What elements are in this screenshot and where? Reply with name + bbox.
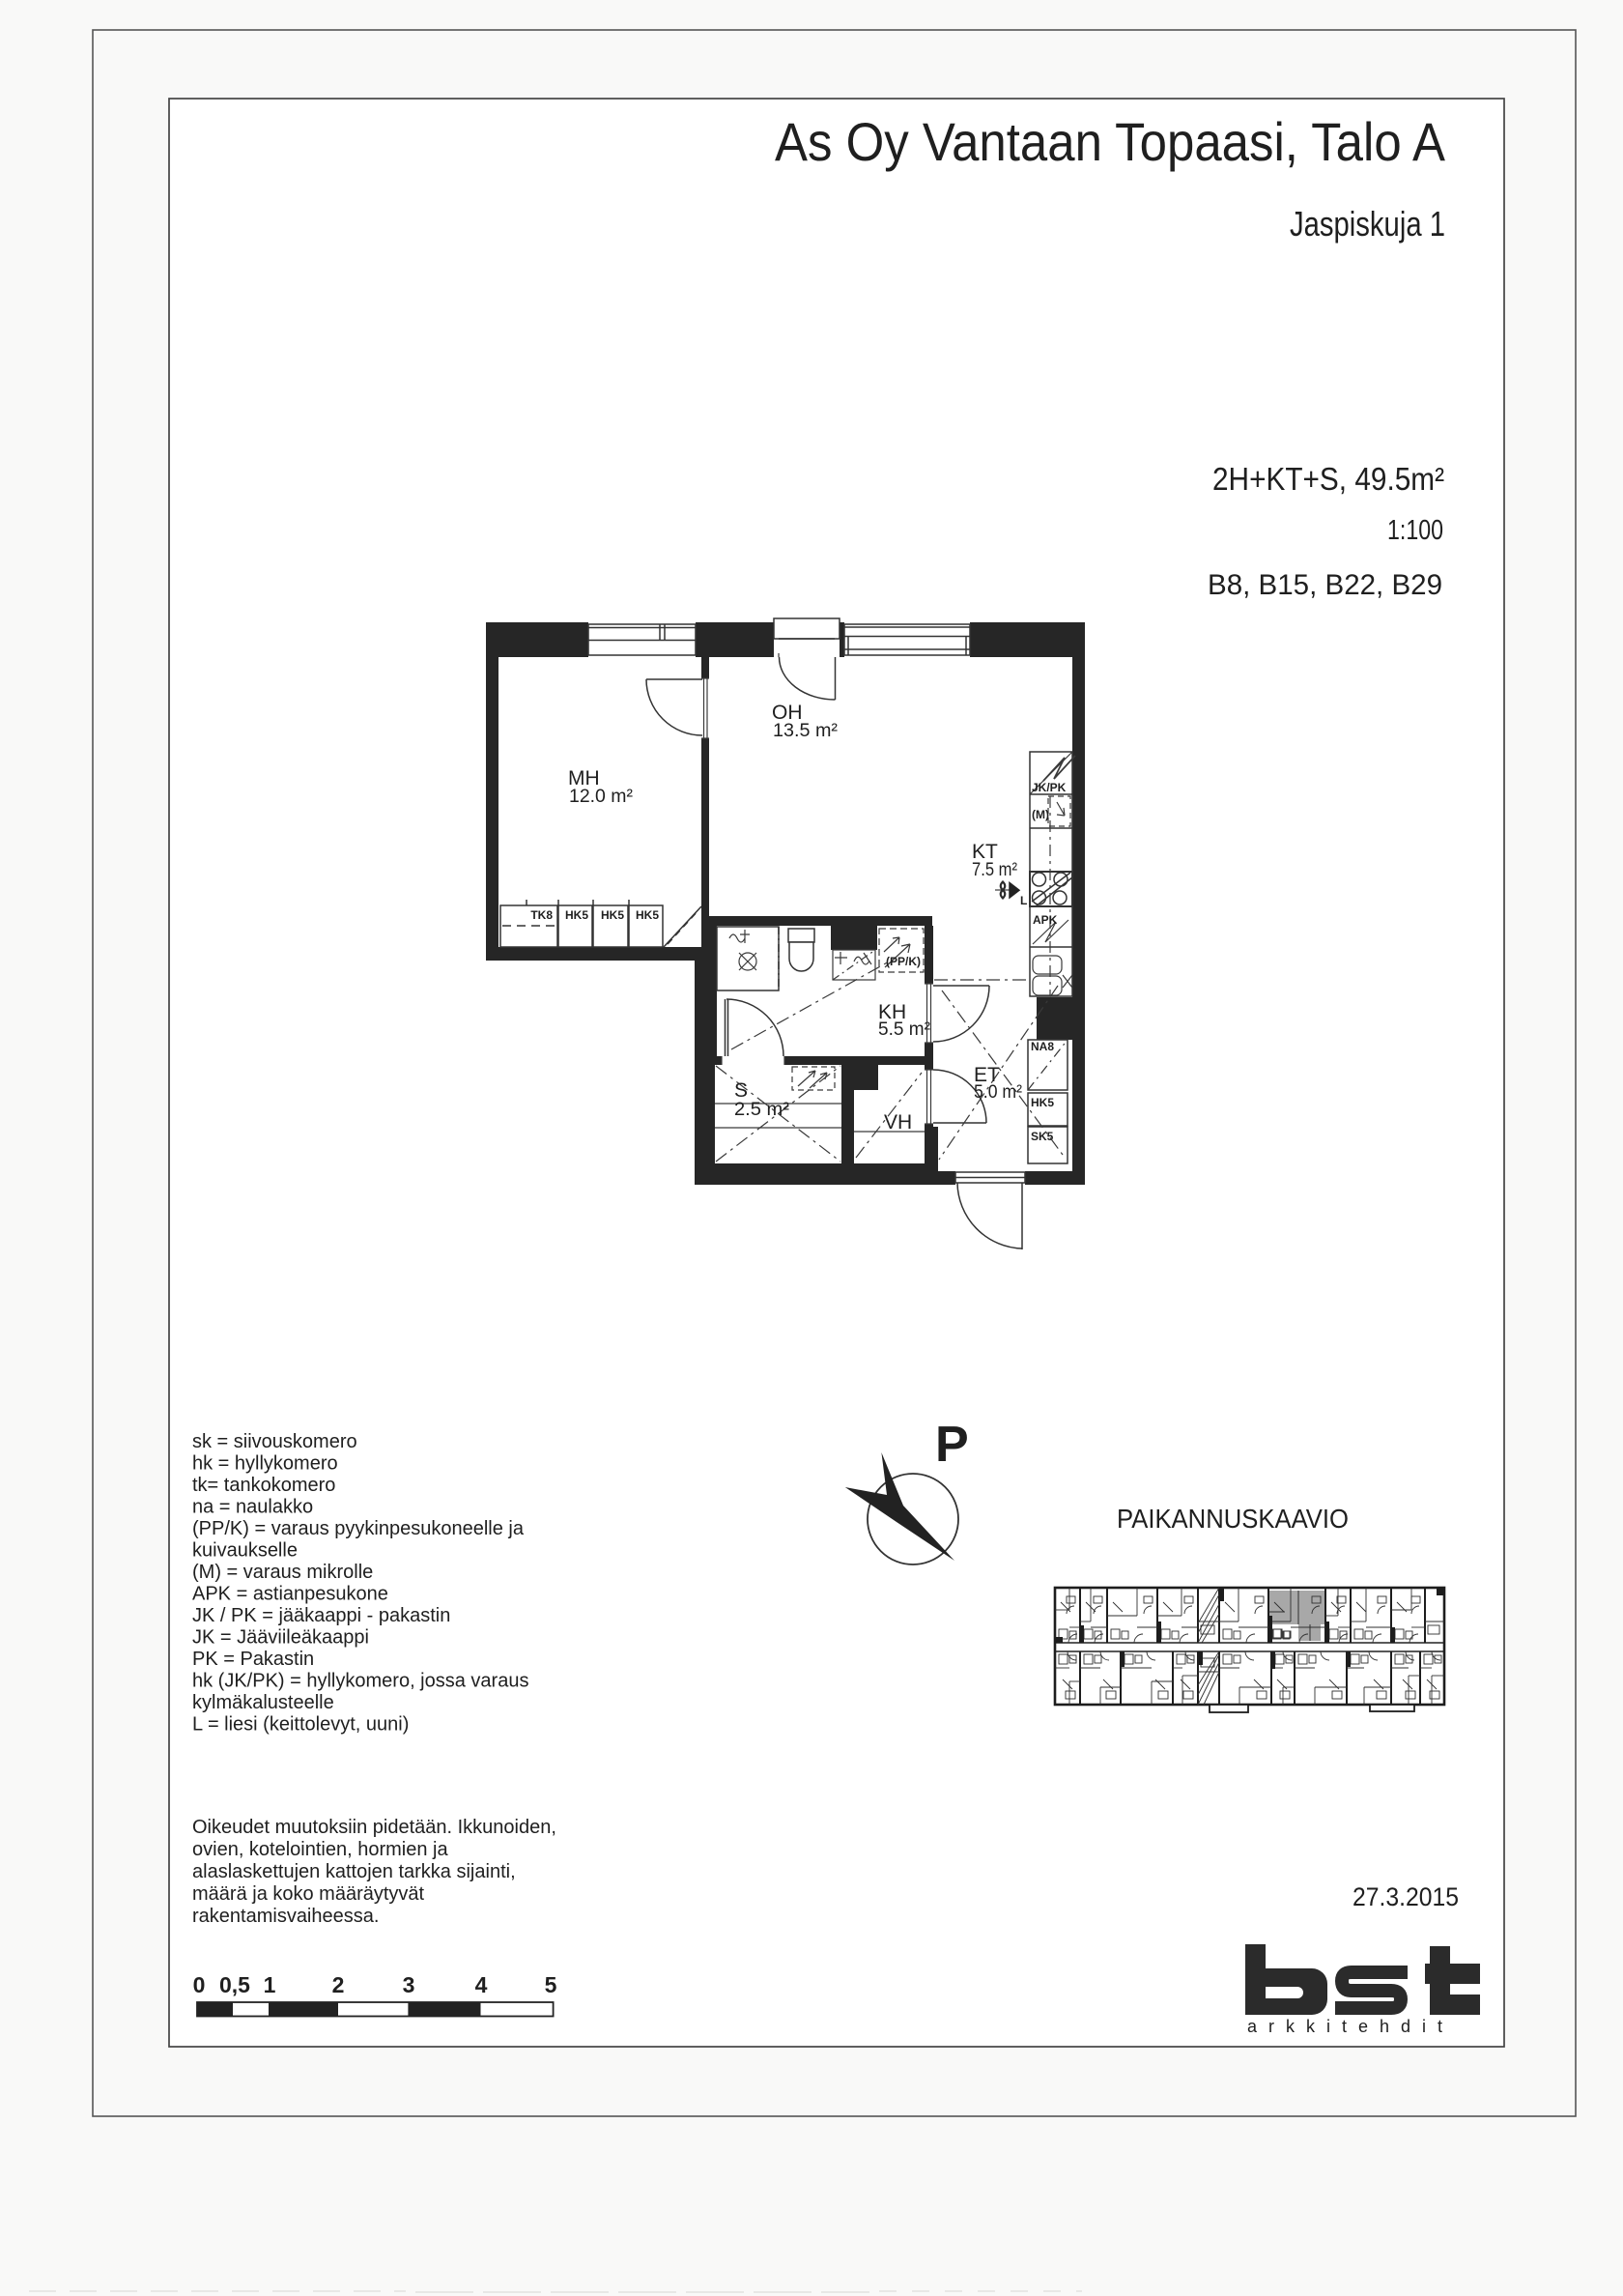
svg-text:JK / PK = jääkaappi - pakastin: JK / PK = jääkaappi - pakastin [192,1605,450,1626]
svg-text:13.5 m²: 13.5 m² [773,721,838,741]
svg-text:S: S [734,1079,748,1102]
svg-text:määrä ja koko määräytyvät: määrä ja koko määräytyvät [192,1883,425,1905]
svg-text:2: 2 [332,1972,345,1997]
svg-text:hk (JK/PK) = hyllykomero, joss: hk (JK/PK) = hyllykomero, jossa varaus [192,1671,528,1692]
svg-text:rakentamisvaiheessa.: rakentamisvaiheessa. [192,1906,379,1927]
svg-text:Jaspiskuja 1: Jaspiskuja 1 [1290,204,1445,244]
svg-text:APK: APK [1033,913,1058,927]
svg-text:7.5 m²: 7.5 m² [972,860,1017,880]
svg-text:(PP/K) = varaus pyykinpesukone: (PP/K) = varaus pyykinpesukoneelle ja [192,1518,525,1539]
svg-text:arkkitehdit: arkkitehdit [1247,2017,1454,2036]
svg-text:PAIKANNUSKAAVIO: PAIKANNUSKAAVIO [1117,1504,1349,1534]
svg-text:1:100: 1:100 [1387,515,1443,546]
svg-text:0: 0 [193,1972,206,1997]
svg-text:kuivaukselle: kuivaukselle [192,1540,298,1562]
svg-text:12.0 m²: 12.0 m² [569,787,633,807]
svg-text:27.3.2015: 27.3.2015 [1352,1882,1459,1911]
svg-text:JK/PK: JK/PK [1032,781,1067,794]
svg-text:HK5: HK5 [601,908,624,922]
svg-text:HK5: HK5 [565,908,588,922]
svg-text:NA8: NA8 [1031,1040,1054,1053]
svg-text:VH: VH [884,1111,912,1134]
svg-text:JK = Jääviileäkaappi: JK = Jääviileäkaappi [192,1627,369,1649]
svg-text:5: 5 [545,1972,557,1997]
svg-text:hk = hyllykomero: hk = hyllykomero [192,1453,338,1475]
svg-text:2H+KT+S, 49.5m²: 2H+KT+S, 49.5m² [1212,461,1444,497]
svg-text:3: 3 [403,1972,415,1997]
svg-text:PK = Pakastin: PK = Pakastin [192,1649,314,1670]
svg-text:tk= tankokomero: tk= tankokomero [192,1475,335,1496]
svg-text:L = liesi (keittolevyt, uuni): L = liesi (keittolevyt, uuni) [192,1714,409,1736]
svg-text:5.0 m²: 5.0 m² [974,1082,1022,1103]
svg-text:P: P [935,1417,969,1473]
svg-text:kylmäkalusteelle: kylmäkalusteelle [192,1692,334,1713]
svg-text:(M): (M) [1032,808,1049,821]
svg-text:SK5: SK5 [1031,1130,1054,1143]
svg-text:1: 1 [264,1972,276,1997]
svg-text:HK5: HK5 [636,908,659,922]
svg-text:alaslaskettujen kattojen tarkk: alaslaskettujen kattojen tarkka sijainti… [192,1861,516,1882]
svg-text:L: L [1020,894,1027,907]
svg-text:Oikeudet muutoksiin pidetään.: Oikeudet muutoksiin pidetään. Ikkunoiden… [192,1817,556,1838]
svg-text:As Oy Vantaan Topaasi, Talo A: As Oy Vantaan Topaasi, Talo A [775,111,1446,172]
svg-text:sk = siivouskomero: sk = siivouskomero [192,1431,357,1452]
svg-text:4: 4 [475,1972,488,1997]
svg-text:0,5: 0,5 [219,1972,250,1997]
svg-text:5.5 m²: 5.5 m² [878,1019,930,1040]
svg-text:(PP/K): (PP/K) [886,955,921,968]
svg-text:ovien, kotelointien, hormien j: ovien, kotelointien, hormien ja [192,1839,448,1860]
svg-text:B8, B15, B22, B29: B8, B15, B22, B29 [1208,569,1442,601]
svg-text:na = naulakko: na = naulakko [192,1497,313,1518]
svg-text:2.5 m²: 2.5 m² [734,1100,789,1120]
svg-text:HK5: HK5 [1031,1096,1054,1109]
svg-text:APK = astianpesukone: APK = astianpesukone [192,1584,388,1605]
svg-text:TK8: TK8 [530,908,553,922]
svg-text:(M) = varaus mikrolle: (M) = varaus mikrolle [192,1562,373,1583]
